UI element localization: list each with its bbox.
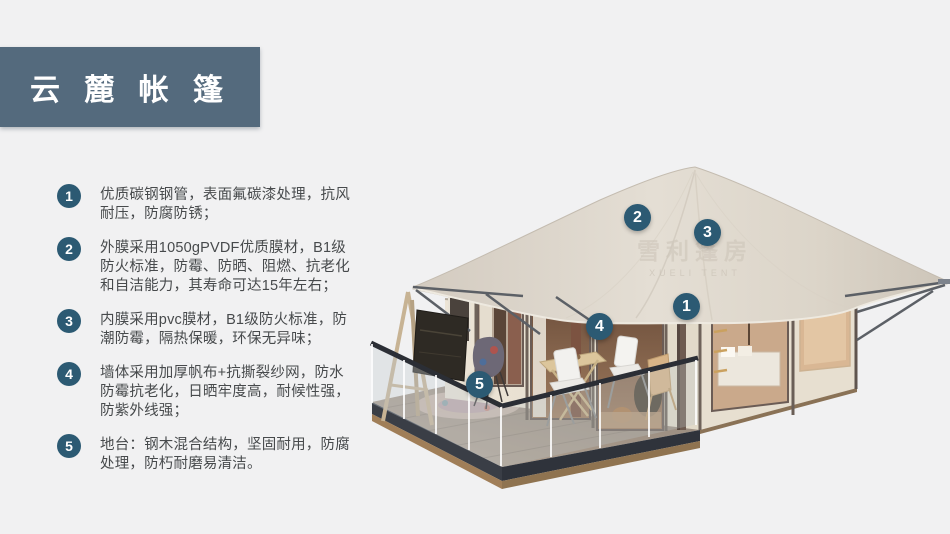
feature-text: 墙体采用加厚帆布+抗撕裂纱网，防水防霉抗老化，日晒牢度高，耐候性强，防紫外线强；	[100, 364, 352, 421]
feature-number-badge: 5	[57, 434, 81, 458]
callout-badge-4: 4	[586, 313, 613, 340]
feature-item-4: 4 墙体采用加厚帆布+抗撕裂纱网，防水防霉抗老化，日晒牢度高，耐候性强，防紫外线…	[57, 364, 357, 421]
page-title: 云 麓 帐 篷	[0, 65, 231, 109]
feature-item-1: 1 优质碳钢钢管，表面氟碳漆处理，抗风耐压，防腐防锈；	[57, 186, 357, 224]
callout-badge-5: 5	[466, 371, 493, 398]
feature-item-2: 2 外膜采用1050gPVDF优质膜材，B1级防火标准，防霉、防晒、阻燃、抗老化…	[57, 239, 357, 296]
feature-number-badge: 3	[57, 309, 81, 333]
feature-number-badge: 4	[57, 362, 81, 386]
feature-item-3: 3 内膜采用pvc膜材，B1级防火标准，防潮防霉，隔热保暖，环保无异味；	[57, 311, 357, 349]
feature-text: 地台：钢木混合结构，坚固耐用，防腐处理，防朽耐磨易清洁。	[100, 436, 352, 474]
callout-badge-2: 2	[624, 204, 651, 231]
feature-list: 1 优质碳钢钢管，表面氟碳漆处理，抗风耐压，防腐防锈； 2 外膜采用1050gP…	[57, 186, 357, 489]
slide: 雪利篷房 XUELI TENT 1 2 3 4 5 云 麓 帐 篷 1 优质碳钢…	[0, 0, 950, 534]
feature-text: 优质碳钢钢管，表面氟碳漆处理，抗风耐压，防腐防锈；	[100, 186, 352, 224]
callout-badge-3: 3	[694, 219, 721, 246]
feature-number-badge: 1	[57, 184, 81, 208]
title-banner: 云 麓 帐 篷	[0, 47, 260, 127]
feature-text: 外膜采用1050gPVDF优质膜材，B1级防火标准，防霉、防晒、阻燃、抗老化和自…	[100, 239, 352, 296]
feature-number-badge: 2	[57, 237, 81, 261]
feature-text: 内膜采用pvc膜材，B1级防火标准，防潮防霉，隔热保暖，环保无异味；	[100, 311, 352, 349]
callout-badge-1: 1	[673, 293, 700, 320]
feature-item-5: 5 地台：钢木混合结构，坚固耐用，防腐处理，防朽耐磨易清洁。	[57, 436, 357, 474]
